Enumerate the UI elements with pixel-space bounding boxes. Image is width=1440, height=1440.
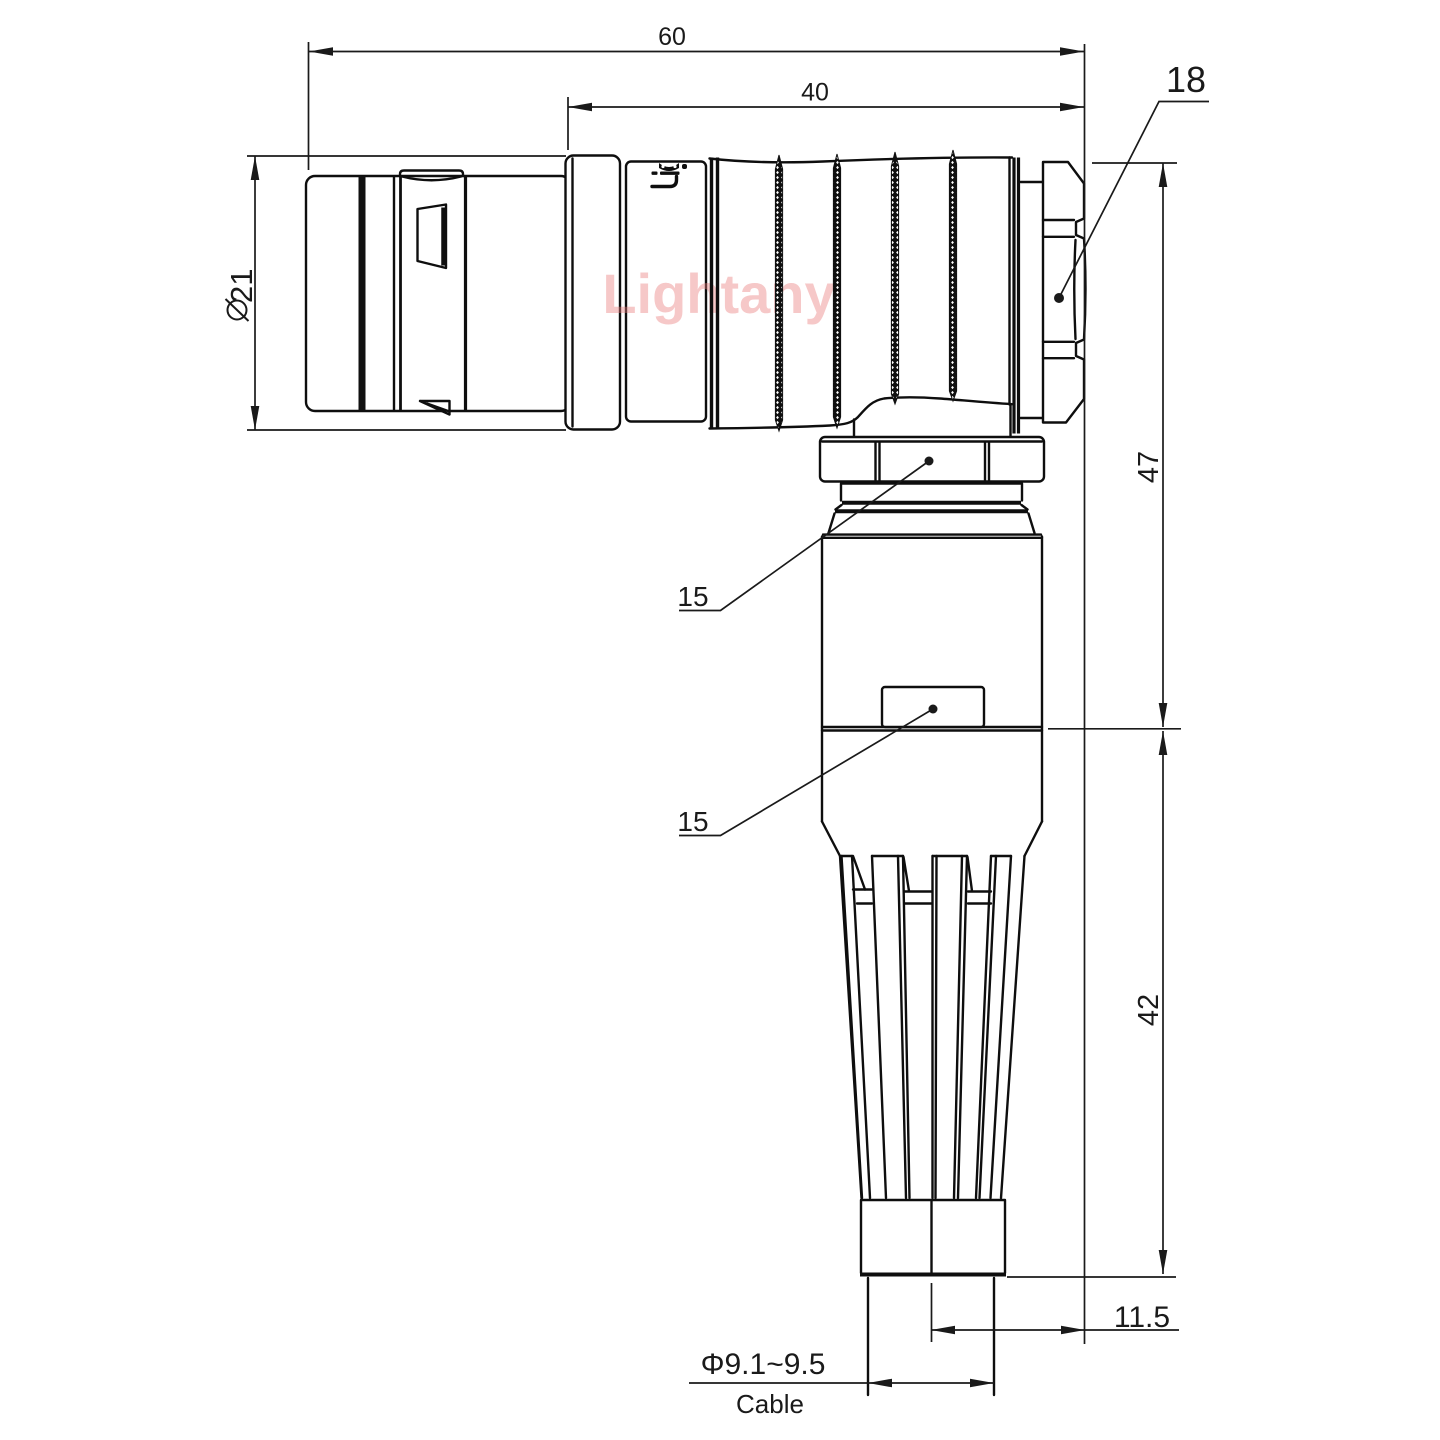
svg-text:Φ9.1~9.5: Φ9.1~9.5 bbox=[701, 1348, 826, 1381]
svg-text:18: 18 bbox=[1166, 59, 1206, 100]
svg-text:15: 15 bbox=[677, 806, 708, 837]
svg-text:40: 40 bbox=[801, 79, 829, 107]
svg-text:15: 15 bbox=[677, 581, 708, 612]
svg-text:21: 21 bbox=[224, 269, 259, 303]
svg-text:11.5: 11.5 bbox=[1114, 1301, 1170, 1334]
svg-text:Cable: Cable bbox=[736, 1389, 804, 1419]
svg-text:47: 47 bbox=[1133, 451, 1165, 483]
svg-text:42: 42 bbox=[1133, 994, 1165, 1026]
svg-text:60: 60 bbox=[658, 23, 686, 51]
